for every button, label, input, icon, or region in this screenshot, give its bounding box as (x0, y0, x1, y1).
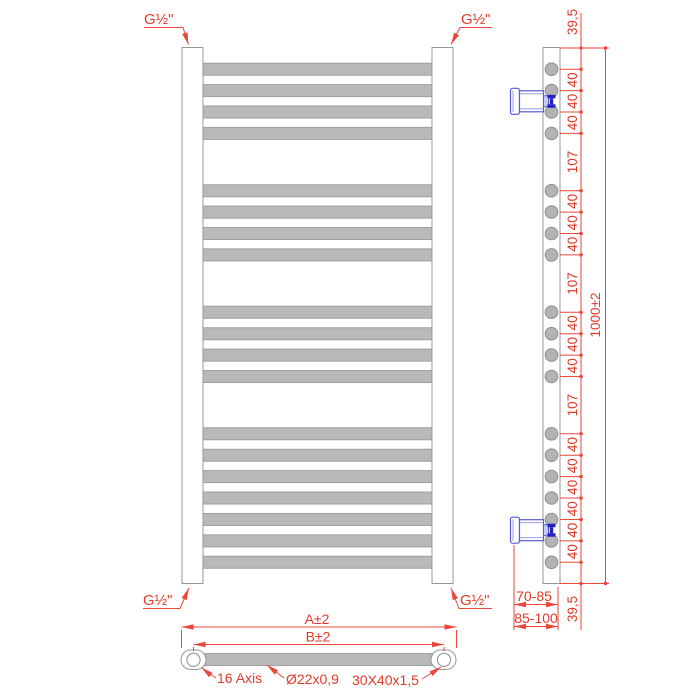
overall-height-label: 1000±2 (588, 293, 603, 338)
g-half-label: G½" (144, 11, 174, 28)
svg-text:40: 40 (565, 501, 580, 516)
connection-callout-top-left: G½" (144, 11, 189, 45)
profile-size-callout: 30X40x1,5 (352, 667, 441, 688)
svg-text:16 Axis: 16 Axis (217, 670, 262, 686)
side-view: 39,5 40 40 40 107 40 40 40 107 40 40 40 … (511, 9, 610, 630)
svg-text:40: 40 (565, 72, 580, 87)
svg-text:70-85: 70-85 (516, 588, 552, 604)
right-rail (432, 48, 453, 584)
right-tube-hole (437, 653, 450, 666)
connection-callout-bottom-right: G½" (451, 588, 492, 609)
chain-dimension-labels: 39,5 40 40 40 107 40 40 40 107 40 40 40 … (565, 9, 580, 622)
svg-text:B±2: B±2 (306, 629, 331, 645)
bottom-view: A±2 B±2 16 Axis Ø22x0,9 30X40x1,5 (181, 611, 457, 688)
svg-text:40: 40 (565, 94, 580, 109)
svg-text:A±2: A±2 (305, 611, 330, 627)
svg-text:107: 107 (565, 151, 580, 174)
svg-text:30X40x1,5: 30X40x1,5 (352, 672, 419, 688)
svg-text:40: 40 (565, 437, 580, 452)
svg-text:Ø22x0,9: Ø22x0,9 (286, 671, 339, 687)
g-half-label: G½" (460, 592, 490, 609)
svg-text:40: 40 (565, 458, 580, 473)
connection-callout-top-right: G½" (451, 11, 492, 45)
drawing-canvas: G½" G½" G½" G½" (0, 0, 700, 700)
svg-text:40: 40 (565, 215, 580, 230)
svg-text:40: 40 (565, 523, 580, 538)
left-rail (182, 48, 203, 584)
cross-tube (205, 654, 432, 666)
towel-bars (203, 63, 432, 568)
svg-text:85-100: 85-100 (514, 610, 558, 626)
svg-text:39,5: 39,5 (565, 596, 580, 622)
svg-text:107: 107 (565, 394, 580, 417)
svg-text:40: 40 (565, 337, 580, 352)
svg-text:40: 40 (565, 315, 580, 330)
svg-text:40: 40 (565, 358, 580, 373)
svg-text:40: 40 (565, 480, 580, 495)
svg-text:40: 40 (565, 115, 580, 130)
svg-text:39,5: 39,5 (565, 9, 580, 35)
svg-text:40: 40 (565, 194, 580, 209)
g-half-label: G½" (143, 592, 173, 609)
connection-callout-bottom-left: G½" (143, 588, 189, 609)
svg-text:107: 107 (565, 272, 580, 295)
front-view: G½" G½" G½" G½" (143, 11, 492, 609)
axis-callout: 16 Axis (202, 668, 263, 687)
tube-size-callout: Ø22x0,9 (267, 665, 339, 687)
g-half-label: G½" (461, 11, 491, 28)
svg-text:40: 40 (565, 544, 580, 559)
axis-dimension-B: B±2 (194, 629, 445, 652)
radiator-technical-drawing: G½" G½" G½" G½" (0, 0, 700, 700)
left-tube-hole (187, 653, 200, 666)
svg-text:40: 40 (565, 237, 580, 252)
